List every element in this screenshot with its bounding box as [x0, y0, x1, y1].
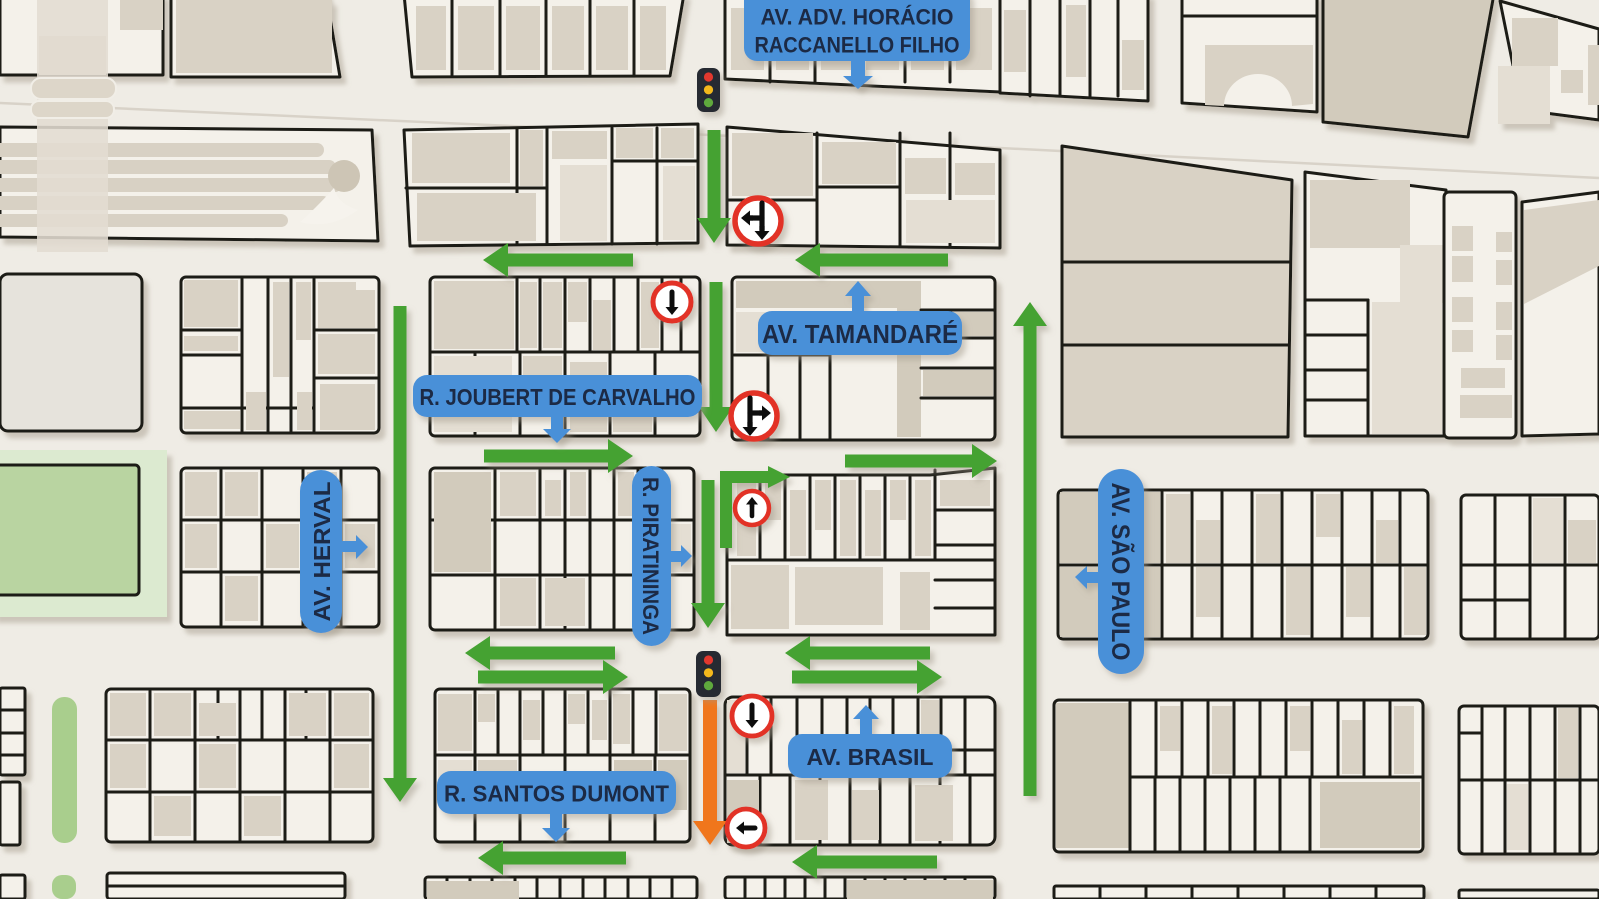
svg-text:R. JOUBERT DE CARVALHO: R. JOUBERT DE CARVALHO	[420, 384, 696, 410]
svg-text:R. PIRATININGA: R. PIRATININGA	[638, 477, 663, 635]
svg-text:AV. TAMANDARÉ: AV. TAMANDARÉ	[762, 319, 958, 349]
svg-text:AV. HERVAL: AV. HERVAL	[309, 482, 335, 622]
svg-text:AV. ADV. HORÁCIO: AV. ADV. HORÁCIO	[761, 5, 954, 30]
svg-text:AV. SÃO PAULO: AV. SÃO PAULO	[1106, 483, 1136, 661]
svg-text:R. SANTOS DUMONT: R. SANTOS DUMONT	[444, 781, 670, 807]
svg-text:AV. BRASIL: AV. BRASIL	[807, 744, 934, 770]
svg-text:RACCANELLO FILHO: RACCANELLO FILHO	[755, 33, 960, 58]
